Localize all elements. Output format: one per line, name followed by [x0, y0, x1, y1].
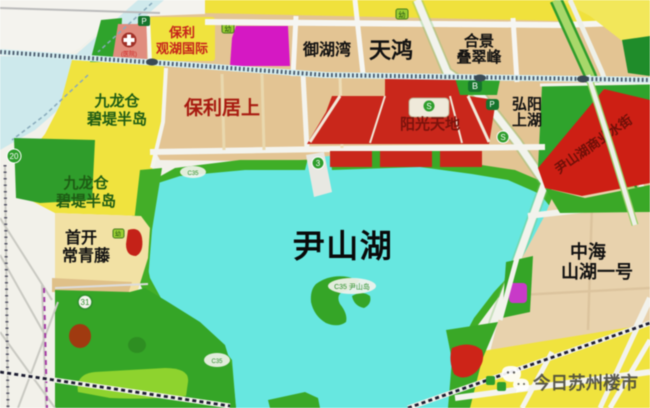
svg-text:天鸿: 天鸿 — [369, 38, 413, 63]
svg-text:碧堤半岛: 碧堤半岛 — [55, 192, 116, 210]
svg-text:S: S — [500, 133, 505, 142]
svg-text:今日苏州楼市: 今日苏州楼市 — [532, 373, 638, 393]
svg-text:3: 3 — [316, 159, 321, 168]
svg-text:御湖湾: 御湖湾 — [302, 40, 351, 59]
svg-text:叠翠峰: 叠翠峰 — [456, 48, 502, 66]
svg-text:尹山湖: 尹山湖 — [293, 228, 394, 264]
svg-text:保利居上: 保利居上 — [183, 96, 260, 119]
svg-text:九龙仓: 九龙仓 — [93, 92, 140, 110]
svg-text:弘阳: 弘阳 — [512, 96, 542, 113]
svg-text:C35: C35 — [211, 359, 223, 365]
svg-text:(医院): (医院) — [121, 50, 137, 58]
svg-text:幼: 幼 — [225, 24, 232, 33]
svg-text:碧堤半岛: 碧堤半岛 — [86, 110, 147, 128]
svg-text:P: P — [141, 17, 146, 26]
svg-text:S: S — [426, 102, 431, 111]
svg-text:首开: 首开 — [65, 228, 97, 247]
svg-text:20: 20 — [10, 152, 19, 161]
svg-text:常青藤: 常青藤 — [62, 246, 111, 265]
svg-text:阳光天地: 阳光天地 — [400, 115, 460, 133]
svg-text:山湖一号: 山湖一号 — [561, 262, 633, 282]
svg-text:观湖国际: 观湖国际 — [156, 41, 208, 56]
svg-text:保利: 保利 — [168, 25, 195, 40]
svg-text:合景: 合景 — [463, 32, 494, 50]
svg-text:幼: 幼 — [399, 10, 406, 19]
svg-text:幼: 幼 — [115, 230, 121, 238]
svg-text:31: 31 — [81, 298, 90, 307]
svg-text:上湖: 上湖 — [512, 112, 542, 129]
svg-text:C35: C35 — [187, 171, 199, 177]
svg-text:中海: 中海 — [570, 241, 606, 262]
svg-text:P: P — [489, 100, 494, 109]
svg-text:九龙仓: 九龙仓 — [62, 174, 109, 192]
svg-text:C35 尹山岛: C35 尹山岛 — [334, 282, 370, 291]
svg-text:B: B — [472, 81, 478, 91]
